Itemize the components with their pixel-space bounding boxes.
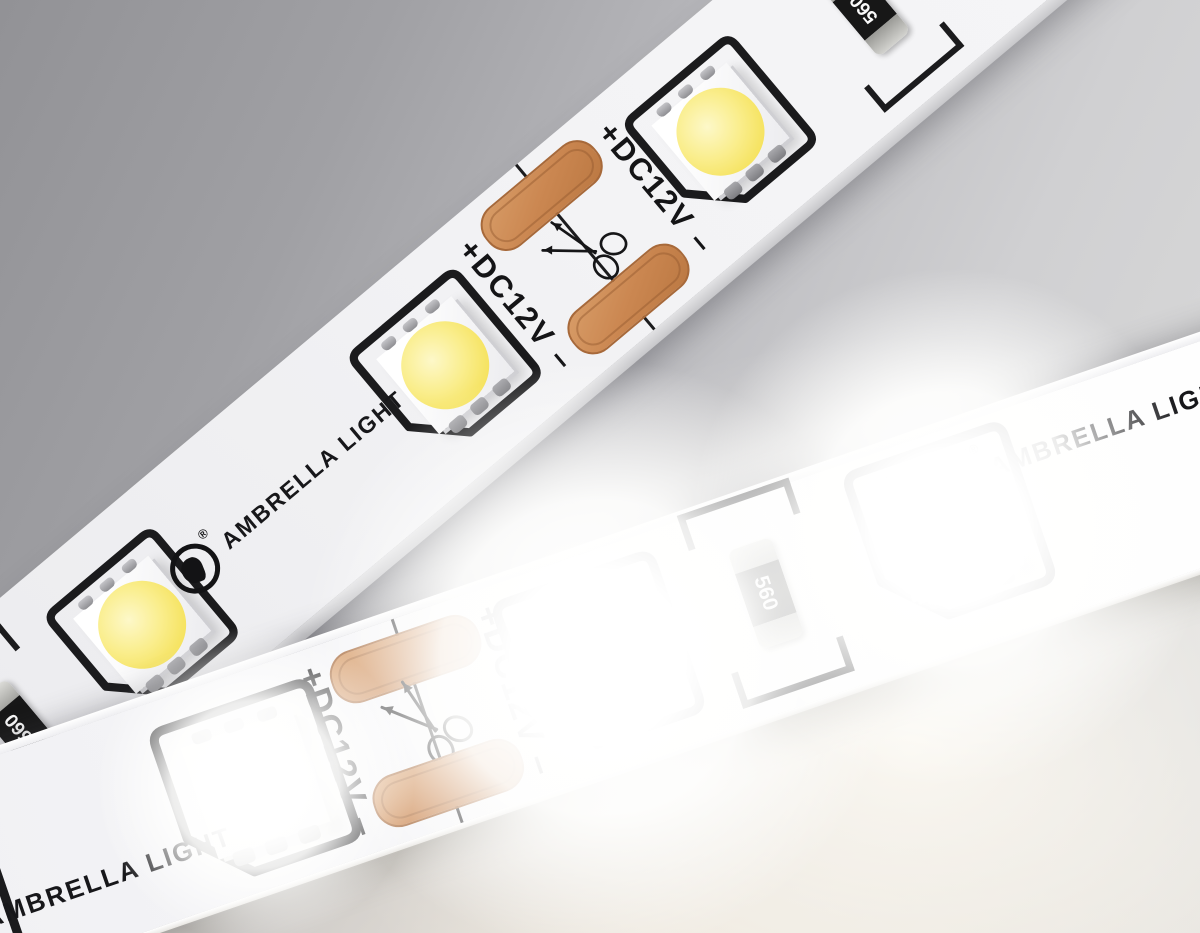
resistor-value: 560: [846, 0, 883, 27]
registered-mark: ®: [194, 525, 211, 543]
cut-point: +DC12V– +DC12V–: [516, 165, 654, 330]
resistor-560: 560: [818, 0, 911, 58]
led-strip-product-photo: 560 ® AMBRELLA LIGHT: [0, 0, 1200, 933]
